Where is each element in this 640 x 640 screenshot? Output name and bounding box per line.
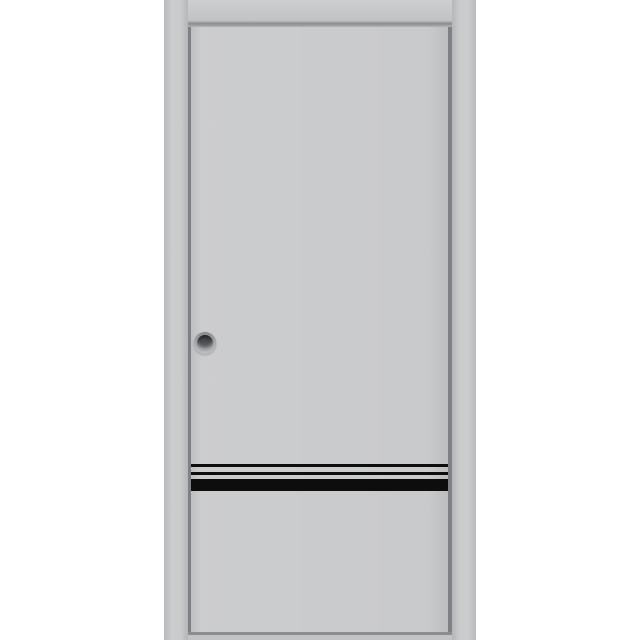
- frame-bottom-track: [188, 635, 452, 640]
- frame-right-jamb: [452, 0, 476, 640]
- inlay-stripe-thin-2: [191, 472, 448, 475]
- product-photo-canvas: [0, 0, 640, 640]
- recessed-pull-handle: [194, 332, 216, 354]
- frame-header-bar: [188, 0, 452, 21]
- recessed-pull-cup: [197, 335, 213, 351]
- door-leaf: [188, 27, 452, 632]
- inlay-stripe-thin-1: [191, 464, 448, 467]
- frame-left-jamb: [164, 0, 188, 640]
- inlay-stripe-thick: [191, 479, 448, 491]
